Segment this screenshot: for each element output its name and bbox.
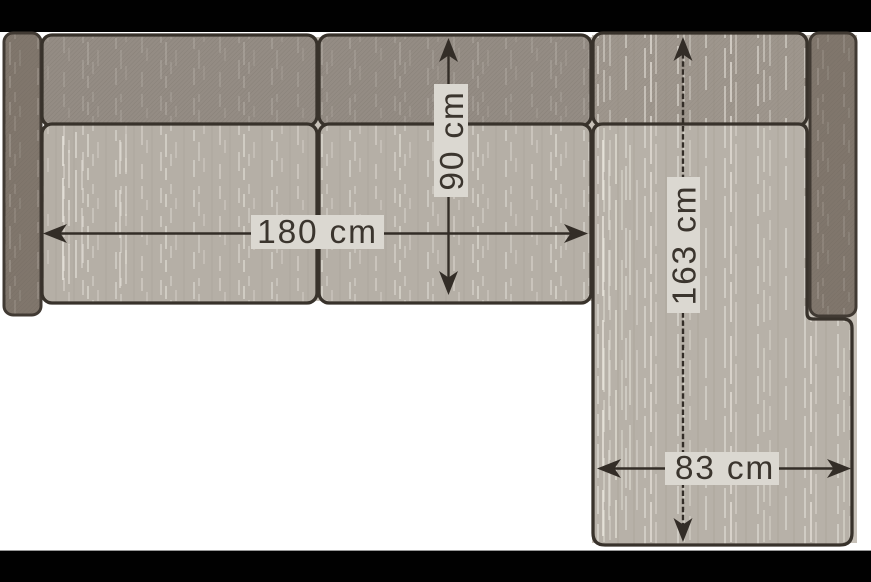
svg-text:180 cm: 180 cm — [257, 214, 378, 251]
svg-text:90 cm: 90 cm — [434, 90, 471, 190]
svg-text:83 cm: 83 cm — [675, 450, 775, 487]
svg-text:163 cm: 163 cm — [667, 185, 704, 306]
